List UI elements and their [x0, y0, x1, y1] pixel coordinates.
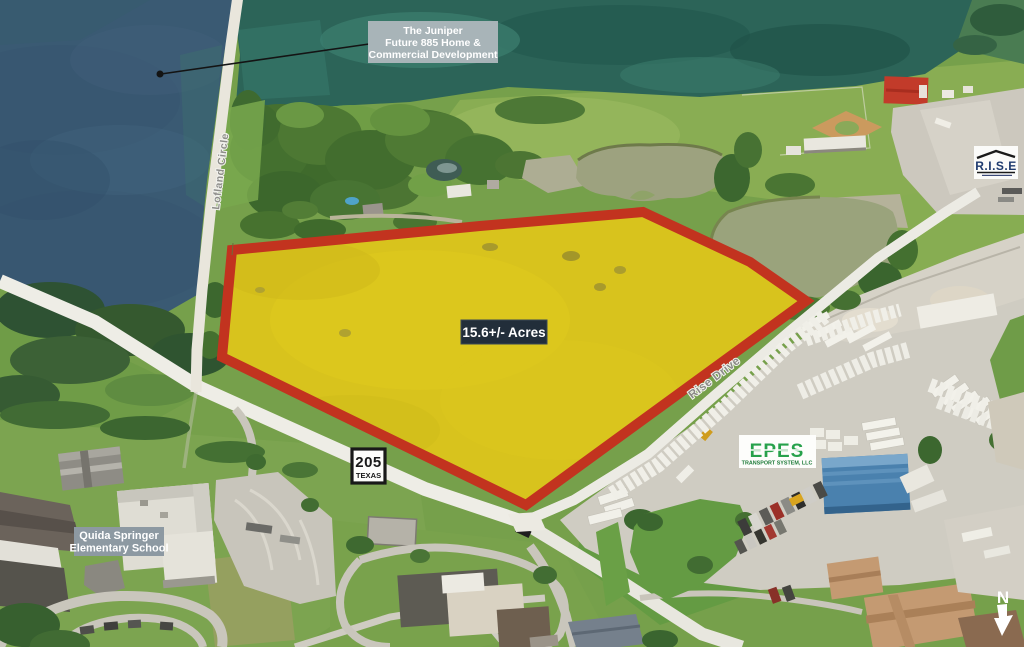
svg-text:Quida Springer: Quida Springer: [79, 530, 159, 542]
svg-text:R.I.S.E: R.I.S.E: [975, 159, 1017, 173]
svg-text:TRANSPORT SYSTEM, LLC: TRANSPORT SYSTEM, LLC: [742, 461, 813, 467]
svg-text:15.6+/- Acres: 15.6+/- Acres: [462, 325, 545, 340]
svg-text:N: N: [997, 588, 1009, 607]
svg-text:Elementary School: Elementary School: [69, 543, 168, 555]
svg-text:Commercial Development: Commercial Development: [369, 49, 498, 61]
svg-text:Future 885 Home &: Future 885 Home &: [385, 37, 481, 49]
svg-text:The Juniper: The Juniper: [403, 25, 463, 37]
svg-text:205: 205: [355, 454, 382, 471]
svg-text:EPES: EPES: [750, 441, 805, 462]
svg-text:TEXAS: TEXAS: [356, 471, 381, 480]
